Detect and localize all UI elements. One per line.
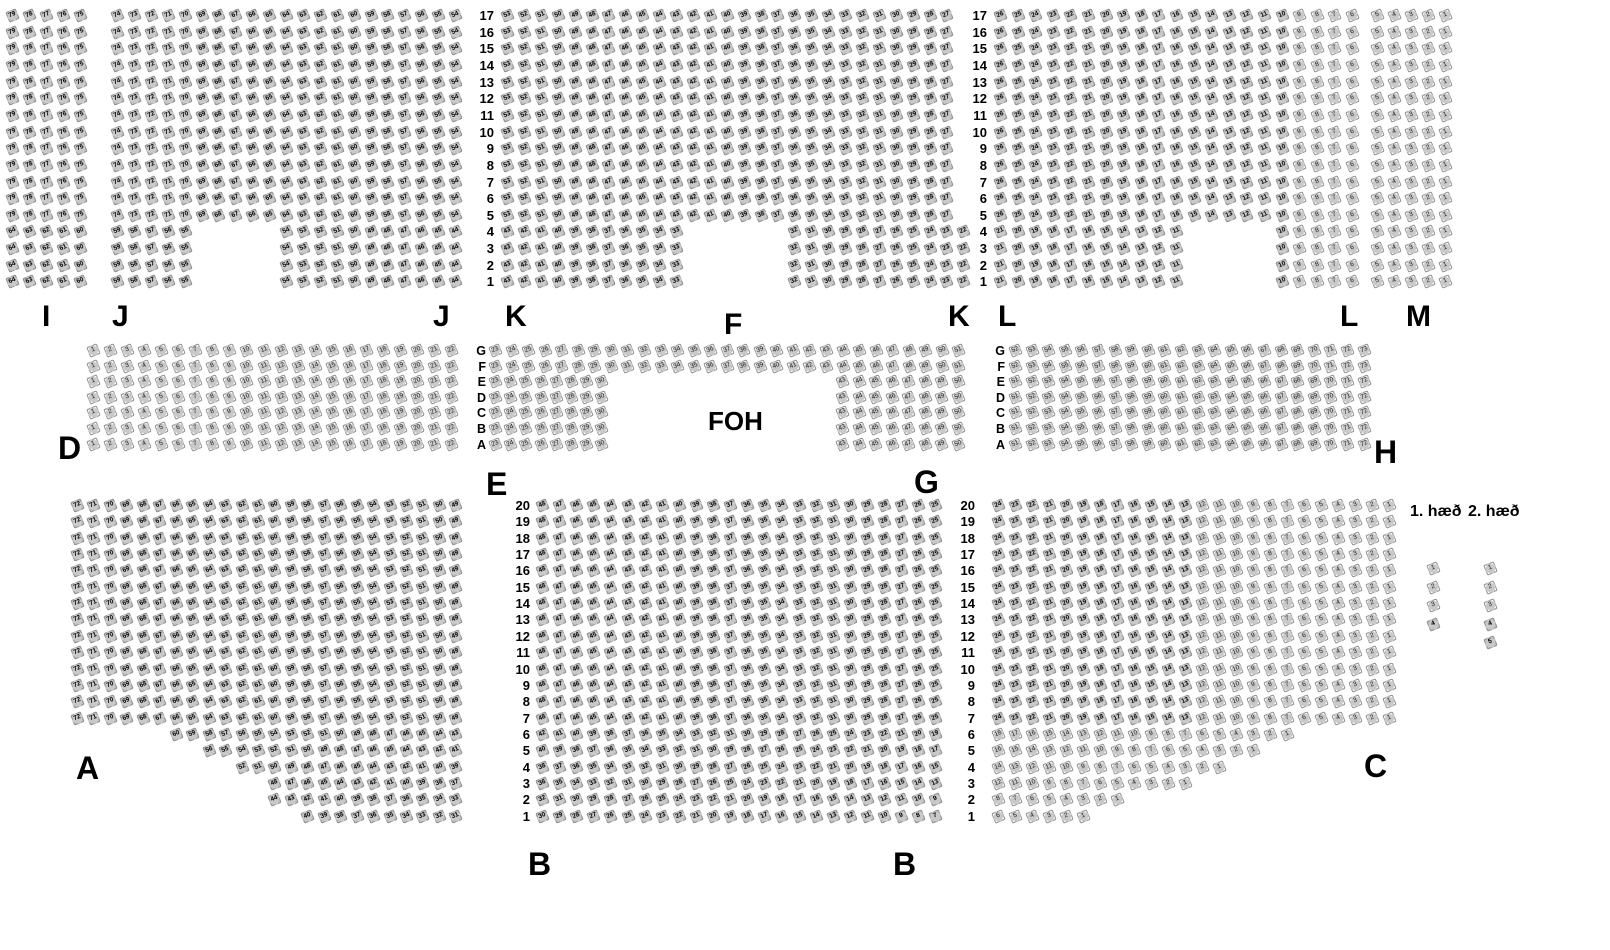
seat[interactable]: 36	[788, 8, 802, 22]
seat[interactable]: 42	[686, 158, 700, 172]
seat[interactable]: 32	[788, 275, 802, 289]
seat[interactable]: 23	[1046, 191, 1060, 205]
seat[interactable]: 14	[1117, 275, 1131, 289]
seat[interactable]: 56	[161, 225, 175, 239]
seat[interactable]: 36	[741, 596, 755, 610]
seat[interactable]: 12	[1152, 225, 1166, 239]
seat[interactable]: 16	[342, 437, 356, 451]
seat[interactable]: 66	[1241, 343, 1255, 357]
seat[interactable]: 14	[1205, 58, 1219, 72]
seat[interactable]: 74	[110, 25, 124, 39]
seat[interactable]: 17	[1152, 175, 1166, 189]
seat[interactable]: 44	[604, 613, 618, 627]
seat[interactable]: 3	[1404, 8, 1418, 22]
seat[interactable]: 27	[894, 564, 908, 578]
seat[interactable]: 4	[1331, 662, 1345, 676]
seat[interactable]: 50	[935, 359, 949, 373]
seat[interactable]: 73	[127, 175, 141, 189]
seat[interactable]: 54	[1042, 343, 1056, 357]
seat[interactable]: 11	[257, 375, 271, 389]
seat[interactable]: 19	[1117, 25, 1131, 39]
seat[interactable]: 17	[1110, 547, 1124, 561]
seat[interactable]: 8	[1310, 125, 1324, 139]
seat[interactable]: 53	[1042, 406, 1056, 420]
seat[interactable]: 24	[991, 613, 1005, 627]
seat[interactable]: 45	[868, 437, 882, 451]
seat[interactable]: 66	[1257, 406, 1271, 420]
seat[interactable]: 5	[1314, 662, 1328, 676]
seat[interactable]: 14	[308, 406, 322, 420]
seat[interactable]: 8	[1263, 695, 1277, 709]
seat[interactable]: 52	[313, 258, 327, 272]
seat[interactable]: 27	[894, 531, 908, 545]
seat[interactable]: 10	[1229, 531, 1243, 545]
seat[interactable]: 18	[741, 809, 755, 823]
seat[interactable]: 48	[918, 437, 932, 451]
seat[interactable]: 4	[1331, 695, 1345, 709]
seat[interactable]: 64	[5, 258, 19, 272]
seat[interactable]: 13	[1178, 613, 1192, 627]
seat[interactable]: 64	[202, 596, 216, 610]
seat[interactable]: 31	[872, 175, 886, 189]
seat[interactable]: 71	[161, 175, 175, 189]
seat[interactable]: 48	[535, 629, 549, 643]
seat[interactable]: 27	[894, 547, 908, 561]
seat[interactable]: 4	[137, 406, 151, 420]
seat[interactable]: 34	[670, 359, 684, 373]
seat[interactable]: 61	[56, 258, 70, 272]
seat[interactable]: 58	[127, 225, 141, 239]
seat[interactable]: 63	[1208, 390, 1222, 404]
seat[interactable]: 38	[585, 225, 599, 239]
seat[interactable]: 36	[703, 359, 717, 373]
seat[interactable]: 46	[619, 142, 633, 156]
seat[interactable]: 28	[923, 158, 937, 172]
seat[interactable]: 33	[838, 75, 852, 89]
seat[interactable]: 34	[821, 92, 835, 106]
seat[interactable]: 21	[1081, 25, 1095, 39]
seat[interactable]: 36	[788, 158, 802, 172]
seat[interactable]: 30	[889, 75, 903, 89]
seat[interactable]: 18	[376, 343, 390, 357]
seat[interactable]: 30	[821, 241, 835, 255]
seat[interactable]: 58	[381, 125, 395, 139]
seat[interactable]: 11	[1257, 175, 1271, 189]
seat[interactable]: 60	[73, 258, 87, 272]
seat[interactable]: 68	[136, 531, 150, 545]
seat[interactable]: 29	[906, 8, 920, 22]
seat[interactable]: 74	[110, 175, 124, 189]
seat[interactable]: 51	[330, 258, 344, 272]
seat[interactable]: 46	[415, 258, 429, 272]
seat[interactable]: 71	[1340, 421, 1354, 435]
seat[interactable]: 3	[120, 437, 134, 451]
seat[interactable]: 62	[1174, 359, 1188, 373]
seat[interactable]: 28	[564, 375, 578, 389]
seat[interactable]: 4	[1331, 645, 1345, 659]
seat[interactable]: 30	[604, 343, 618, 357]
seat[interactable]: 52	[399, 645, 413, 659]
seat[interactable]: 41	[703, 142, 717, 156]
seat[interactable]: 67	[153, 547, 167, 561]
seat[interactable]: 15	[1144, 613, 1158, 627]
seat[interactable]: 52	[399, 515, 413, 529]
seat[interactable]: 65	[262, 158, 276, 172]
seat[interactable]: 2	[1365, 613, 1379, 627]
seat[interactable]: 65	[185, 645, 199, 659]
seat[interactable]: 7	[189, 375, 203, 389]
seat[interactable]: 17	[1110, 596, 1124, 610]
seat[interactable]: 19	[393, 421, 407, 435]
seat[interactable]: 19	[1076, 629, 1090, 643]
seat[interactable]: 24	[1029, 158, 1043, 172]
seat[interactable]: 25	[906, 241, 920, 255]
seat[interactable]: 32	[672, 744, 686, 758]
seat[interactable]: 38	[706, 662, 720, 676]
seat[interactable]: 32	[809, 580, 823, 594]
seat[interactable]: 38	[706, 564, 720, 578]
seat[interactable]: 28	[877, 580, 891, 594]
seat[interactable]: 47	[602, 191, 616, 205]
seat[interactable]: 9	[223, 343, 237, 357]
seat[interactable]: 38	[570, 744, 584, 758]
seat[interactable]: 62	[313, 25, 327, 39]
seat[interactable]: 28	[564, 421, 578, 435]
seat[interactable]: 16	[809, 793, 823, 807]
seat[interactable]: 56	[161, 275, 175, 289]
seat[interactable]: 28	[923, 108, 937, 122]
seat[interactable]: 6	[172, 375, 186, 389]
seat[interactable]: 29	[838, 241, 852, 255]
seat[interactable]: 50	[347, 275, 361, 289]
seat[interactable]: 62	[313, 158, 327, 172]
seat[interactable]: 20	[1059, 515, 1073, 529]
seat[interactable]: 6	[991, 809, 1005, 823]
seat[interactable]: 14	[1059, 727, 1073, 741]
seat[interactable]: 30	[889, 8, 903, 22]
seat[interactable]: 56	[161, 241, 175, 255]
seat[interactable]: 12	[1152, 241, 1166, 255]
seat[interactable]: 21	[1081, 75, 1095, 89]
seat[interactable]: 19	[1076, 564, 1090, 578]
seat[interactable]: 15	[1042, 727, 1056, 741]
seat[interactable]: 1	[1382, 629, 1396, 643]
seat[interactable]: 14	[1161, 662, 1175, 676]
seat[interactable]: 12	[1195, 629, 1209, 643]
seat[interactable]: 71	[1324, 359, 1338, 373]
seat[interactable]: 51	[416, 662, 430, 676]
seat[interactable]: 10	[1093, 744, 1107, 758]
seat[interactable]: 62	[1191, 390, 1205, 404]
seat[interactable]: 8	[1263, 498, 1277, 512]
seat[interactable]: 68	[136, 515, 150, 529]
seat[interactable]: 7	[1328, 25, 1342, 39]
seat[interactable]: 31	[872, 8, 886, 22]
seat[interactable]: 40	[672, 498, 686, 512]
seat[interactable]: 66	[1257, 390, 1271, 404]
seat[interactable]: 77	[39, 8, 53, 22]
seat[interactable]: 49	[350, 727, 364, 741]
seat[interactable]: 10	[1229, 564, 1243, 578]
seat[interactable]: 42	[638, 629, 652, 643]
seat[interactable]: 62	[313, 92, 327, 106]
seat[interactable]: 28	[923, 125, 937, 139]
seat[interactable]: 26	[912, 531, 926, 545]
seat[interactable]: 41	[655, 564, 669, 578]
seat[interactable]: 14	[1117, 225, 1131, 239]
seat[interactable]: 29	[860, 531, 874, 545]
seat[interactable]: 51	[284, 744, 298, 758]
seat[interactable]: 25	[723, 776, 737, 790]
seat[interactable]: 31	[872, 92, 886, 106]
seat[interactable]: 19	[723, 809, 737, 823]
seat[interactable]: 71	[87, 564, 101, 578]
seat[interactable]: 65	[262, 42, 276, 56]
seat[interactable]: 7	[1008, 793, 1022, 807]
seat[interactable]: 34	[652, 275, 666, 289]
seat[interactable]: 44	[836, 343, 850, 357]
seat[interactable]: 75	[73, 8, 87, 22]
seat[interactable]: 54	[366, 613, 380, 627]
seat[interactable]: 72	[1357, 375, 1371, 389]
seat[interactable]: 26	[993, 58, 1007, 72]
seat[interactable]: 1	[1382, 547, 1396, 561]
seat[interactable]: 70	[178, 158, 192, 172]
seat[interactable]: 70	[103, 515, 117, 529]
seat[interactable]: 56	[334, 613, 348, 627]
seat[interactable]: 36	[788, 42, 802, 56]
seat[interactable]: 60	[268, 531, 282, 545]
seat[interactable]: 5	[1483, 635, 1497, 649]
seat[interactable]: 54	[366, 547, 380, 561]
seat[interactable]: 26	[993, 158, 1007, 172]
seat[interactable]: 51	[1008, 390, 1022, 404]
seat[interactable]: 18	[1046, 258, 1060, 272]
seat[interactable]: 23	[1046, 108, 1060, 122]
seat[interactable]: 36	[741, 515, 755, 529]
seat[interactable]: 47	[350, 744, 364, 758]
seat[interactable]: 44	[399, 744, 413, 758]
seat[interactable]: 41	[655, 629, 669, 643]
seat[interactable]: 45	[317, 776, 331, 790]
seat[interactable]: 62	[313, 108, 327, 122]
seat[interactable]: 5	[1314, 629, 1328, 643]
seat[interactable]: 40	[720, 175, 734, 189]
seat[interactable]: 69	[1307, 437, 1321, 451]
seat[interactable]: 45	[383, 744, 397, 758]
seat[interactable]: 3	[1348, 515, 1362, 529]
seat[interactable]: 52	[517, 42, 531, 56]
seat[interactable]: 67	[153, 564, 167, 578]
seat[interactable]: 67	[153, 678, 167, 692]
seat[interactable]: 16	[342, 375, 356, 389]
seat[interactable]: 16	[1169, 92, 1183, 106]
seat[interactable]: 4	[1229, 727, 1243, 741]
seat[interactable]: 12	[274, 421, 288, 435]
seat[interactable]: 50	[551, 92, 565, 106]
seat[interactable]: 52	[1025, 437, 1039, 451]
seat[interactable]: 51	[1008, 421, 1022, 435]
seat[interactable]: 14	[1205, 191, 1219, 205]
seat[interactable]: 16	[1127, 629, 1141, 643]
seat[interactable]: 6	[1345, 175, 1359, 189]
seat[interactable]: 21	[1081, 125, 1095, 139]
seat[interactable]: 26	[912, 613, 926, 627]
seat[interactable]: 55	[178, 225, 192, 239]
seat[interactable]: 61	[330, 58, 344, 72]
seat[interactable]: 22	[1025, 613, 1039, 627]
seat[interactable]: 11	[1212, 596, 1226, 610]
seat[interactable]: 46	[570, 613, 584, 627]
seat[interactable]: 42	[399, 760, 413, 774]
seat[interactable]: 3	[1404, 142, 1418, 156]
seat[interactable]: 68	[1291, 421, 1305, 435]
seat[interactable]: 71	[87, 645, 101, 659]
seat[interactable]: 35	[655, 727, 669, 741]
seat[interactable]: 21	[427, 375, 441, 389]
seat[interactable]: 8	[1263, 662, 1277, 676]
seat[interactable]: 4	[137, 437, 151, 451]
seat[interactable]: 25	[519, 437, 533, 451]
seat[interactable]: 24	[1029, 208, 1043, 222]
seat[interactable]: 42	[803, 343, 817, 357]
seat[interactable]: 47	[902, 421, 916, 435]
seat[interactable]: 52	[517, 108, 531, 122]
seat[interactable]: 25	[1011, 92, 1025, 106]
seat[interactable]: 22	[444, 421, 458, 435]
seat[interactable]: 15	[1144, 662, 1158, 676]
seat[interactable]: 59	[284, 547, 298, 561]
seat[interactable]: 5	[1110, 776, 1124, 790]
seat[interactable]: 5	[1370, 241, 1384, 255]
seat[interactable]: 11	[1212, 695, 1226, 709]
seat[interactable]: 36	[741, 711, 755, 725]
seat[interactable]: 21	[427, 437, 441, 451]
seat[interactable]: 8	[1310, 58, 1324, 72]
seat[interactable]: 36	[788, 92, 802, 106]
seat[interactable]: 16	[1127, 645, 1141, 659]
seat[interactable]: 10	[1229, 645, 1243, 659]
seat[interactable]: 5	[1370, 275, 1384, 289]
seat[interactable]: 29	[860, 498, 874, 512]
seat[interactable]: 68	[212, 125, 226, 139]
seat[interactable]: 12	[1195, 580, 1209, 594]
seat[interactable]: 48	[902, 343, 916, 357]
seat[interactable]: 44	[604, 564, 618, 578]
seat[interactable]: 57	[144, 241, 158, 255]
seat[interactable]: 10	[1275, 92, 1289, 106]
seat[interactable]: 49	[449, 580, 463, 594]
seat[interactable]: 69	[120, 645, 134, 659]
seat[interactable]: 24	[991, 678, 1005, 692]
seat[interactable]: 31	[872, 191, 886, 205]
seat[interactable]: 70	[178, 42, 192, 56]
seat[interactable]: 8	[206, 421, 220, 435]
seat[interactable]: 23	[940, 241, 954, 255]
seat[interactable]: 52	[399, 678, 413, 692]
seat[interactable]: 25	[621, 809, 635, 823]
seat[interactable]: 24	[923, 258, 937, 272]
seat[interactable]: 29	[580, 375, 594, 389]
seat[interactable]: 66	[169, 498, 183, 512]
seat[interactable]: 44	[852, 406, 866, 420]
seat[interactable]: 69	[195, 175, 209, 189]
seat[interactable]: 10	[1275, 191, 1289, 205]
seat[interactable]: 4	[1331, 596, 1345, 610]
seat[interactable]: 19	[1076, 580, 1090, 594]
seat[interactable]: 20	[741, 793, 755, 807]
seat[interactable]: 59	[284, 613, 298, 627]
seat[interactable]: 52	[517, 58, 531, 72]
seat[interactable]: 21	[1042, 678, 1056, 692]
seat[interactable]: 13	[291, 406, 305, 420]
seat[interactable]: 36	[741, 498, 755, 512]
seat[interactable]: 35	[805, 208, 819, 222]
seat[interactable]: 77	[39, 25, 53, 39]
seat[interactable]: 62	[235, 515, 249, 529]
seat[interactable]: 4	[1387, 125, 1401, 139]
seat[interactable]: 3	[1348, 629, 1362, 643]
seat[interactable]: 27	[940, 92, 954, 106]
seat[interactable]: 58	[381, 175, 395, 189]
seat[interactable]: 2	[1421, 42, 1435, 56]
seat[interactable]: 29	[906, 25, 920, 39]
seat[interactable]: 37	[723, 498, 737, 512]
seat[interactable]: 44	[652, 208, 666, 222]
seat[interactable]: 68	[136, 564, 150, 578]
seat[interactable]: 45	[636, 25, 650, 39]
seat[interactable]: 48	[585, 25, 599, 39]
seat[interactable]: 69	[120, 515, 134, 529]
seat[interactable]: 32	[855, 175, 869, 189]
seat[interactable]: 47	[552, 547, 566, 561]
seat[interactable]: 36	[619, 225, 633, 239]
seat[interactable]: 1	[1382, 531, 1396, 545]
seat[interactable]: 6	[1345, 275, 1359, 289]
seat[interactable]: 5	[1370, 258, 1384, 272]
seat[interactable]: 18	[1093, 547, 1107, 561]
seat[interactable]: 6	[1297, 613, 1311, 627]
seat[interactable]: 1	[1382, 596, 1396, 610]
seat[interactable]: 23	[792, 760, 806, 774]
seat[interactable]: 43	[621, 498, 635, 512]
seat[interactable]: 37	[771, 125, 785, 139]
seat[interactable]: 35	[758, 547, 772, 561]
seat[interactable]: 45	[636, 142, 650, 156]
seat[interactable]: 28	[877, 564, 891, 578]
seat[interactable]: 38	[754, 108, 768, 122]
seat[interactable]: 53	[1042, 437, 1056, 451]
seat[interactable]: 11	[1212, 645, 1226, 659]
seat[interactable]: 17	[1152, 158, 1166, 172]
seat[interactable]: 59	[364, 142, 378, 156]
seat[interactable]: 7	[1280, 645, 1294, 659]
seat[interactable]: 24	[1029, 125, 1043, 139]
seat[interactable]: 8	[1263, 645, 1277, 659]
seat[interactable]: 45	[636, 58, 650, 72]
seat[interactable]: 2	[1365, 564, 1379, 578]
seat[interactable]: 53	[500, 191, 514, 205]
seat[interactable]: 2	[1365, 711, 1379, 725]
seat[interactable]: 34	[821, 25, 835, 39]
seat[interactable]: 20	[1059, 580, 1073, 594]
seat[interactable]: 4	[1161, 760, 1175, 774]
seat[interactable]: 22	[1025, 596, 1039, 610]
seat[interactable]: 65	[185, 564, 199, 578]
seat[interactable]: 33	[838, 8, 852, 22]
seat[interactable]: 26	[889, 275, 903, 289]
seat[interactable]: 21	[723, 793, 737, 807]
